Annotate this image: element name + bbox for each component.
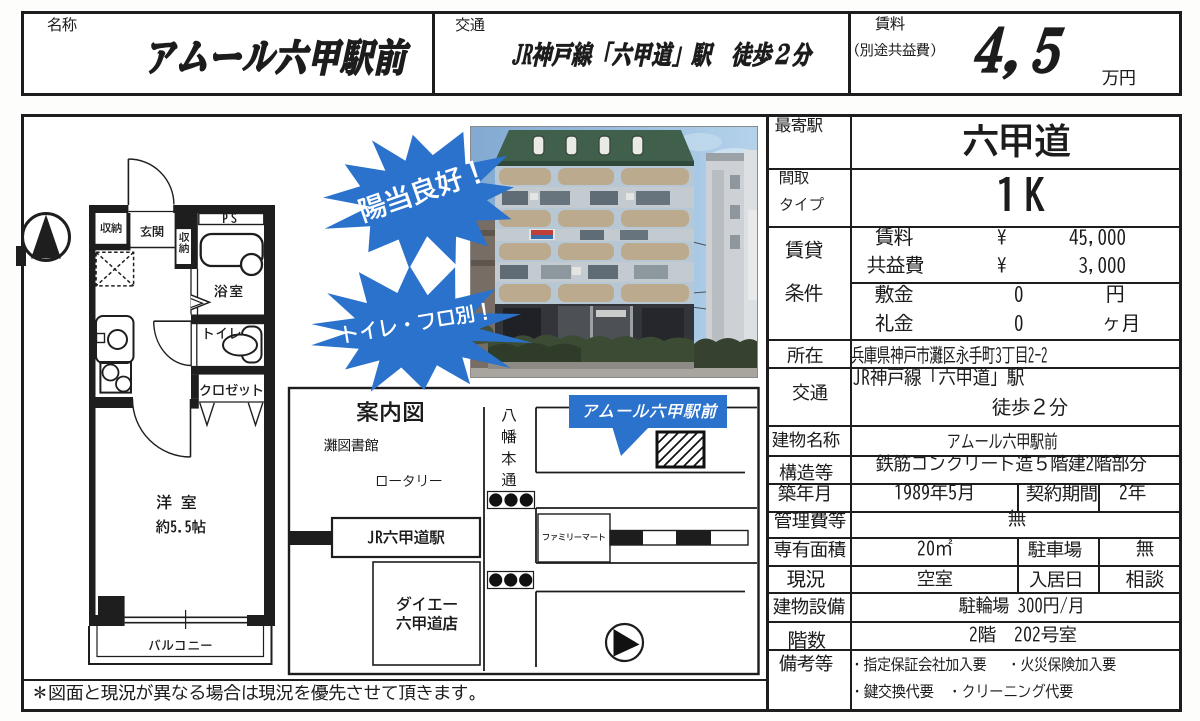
- svg-text:ダイエー: ダイエー: [396, 596, 458, 612]
- svg-text:PS: PS: [222, 213, 240, 225]
- svg-text:ファミリーマート: ファミリーマート: [542, 533, 606, 541]
- svg-text:JR六甲道駅: JR六甲道駅: [367, 529, 445, 545]
- svg-text:収: 収: [179, 232, 190, 243]
- svg-text:八: 八: [502, 408, 517, 423]
- svg-text:収納: 収納: [100, 222, 122, 234]
- svg-text:通: 通: [502, 472, 518, 487]
- svg-text:納: 納: [179, 243, 190, 254]
- svg-text:アムール六甲駅前: アムール六甲駅前: [580, 402, 720, 420]
- svg-text:クロゼット: クロゼット: [199, 383, 264, 397]
- svg-text:本: 本: [502, 450, 517, 466]
- svg-text:幡: 幡: [502, 428, 518, 444]
- svg-text:洋室: 洋室: [157, 494, 206, 510]
- svg-text:約5.5帖: 約5.5帖: [156, 519, 207, 534]
- svg-text:バルコニー: バルコニー: [149, 639, 214, 652]
- svg-text:浴室: 浴室: [214, 284, 245, 298]
- svg-text:玄関: 玄関: [140, 225, 164, 238]
- svg-text:ロータリー: ロータリー: [375, 474, 443, 488]
- svg-text:六甲道店: 六甲道店: [396, 614, 458, 632]
- svg-text:灘図書館: 灘図書館: [324, 438, 379, 452]
- svg-text:トイレ: トイレ: [202, 327, 243, 340]
